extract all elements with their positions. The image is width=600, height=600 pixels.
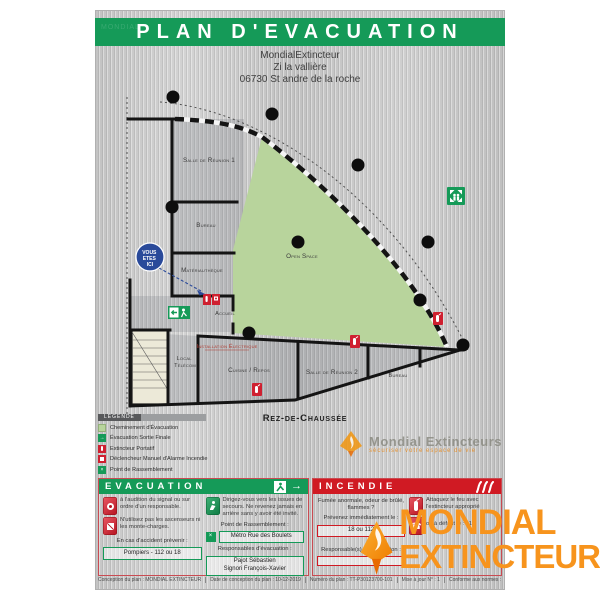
legend-item-label: Déclencheur Manuel d'Alarme Incendie <box>110 456 207 462</box>
assembly-point-icon: × <box>206 532 216 542</box>
legend-header-bar <box>141 414 206 421</box>
responsables-box: Pajot Sébastien Signori François-Xavier <box>206 556 305 576</box>
instruction-no-elevator: N'utilisez pas les ascenseurs ni les mon… <box>103 517 202 535</box>
watermark-text: Mondial Extincteurs sécuriser votre espa… <box>369 435 502 454</box>
watermark-name: Mondial Extincteurs <box>369 435 502 448</box>
assembly-point-icon <box>447 187 465 205</box>
brand-line-2: EXTINCTEUR <box>399 540 600 573</box>
evacuation-left-column: à l'audition du signal ou sur ordre d'un… <box>103 497 202 576</box>
brand-line-1: MONDIAL <box>399 506 600 540</box>
accident-label: En cas d'accident prévenir : <box>103 538 202 545</box>
assembly-point-row: × Métro Rue des Boulets <box>206 531 305 544</box>
legend-item: Déclencheur Manuel d'Alarme Incendie <box>98 455 206 463</box>
room-label-bureau-1: Bureau <box>196 222 215 229</box>
legend: LÉGENDE Cheminement d'Évacuation → Évacu… <box>98 414 206 474</box>
incendie-title: INCENDIE <box>319 481 468 492</box>
title-banner: MONDIAL PLAN D'EVACUATION <box>95 18 505 46</box>
responsables-label: Responsables d'évacuation : <box>206 546 305 553</box>
room-label-local-telecom-2: Télécom <box>174 363 196 369</box>
evacuation-path-area <box>233 137 447 347</box>
brand-text: MONDIAL EXTINCTEUR <box>399 506 600 573</box>
extinguisher-icon <box>98 445 106 453</box>
legend-item: × Point de Rassemblement <box>98 466 206 474</box>
assembly-point-icon: × <box>98 466 106 474</box>
assembly-point-value: Métro Rue des Boulets <box>219 531 305 544</box>
mondial-extincteur-logo: MONDIAL EXTINCTEUR <box>356 498 600 600</box>
evacuation-panel-body: à l'audition du signal ou sur ordre d'un… <box>99 494 308 579</box>
company-watermark: Mondial Extincteurs sécuriser votre espa… <box>338 430 502 458</box>
footer-conception: Conception du plan : MONDIAL EXTINCTEUR <box>98 577 206 583</box>
flame-logo-icon <box>338 430 364 458</box>
page: { "title": "PLAN D'EVACUATION", "address… <box>0 0 600 600</box>
instruction-signal: à l'audition du signal ou sur ordre d'un… <box>103 497 202 515</box>
room-label-accueil: Accueil <box>215 311 235 317</box>
page-title: PLAN D'EVACUATION <box>136 21 463 44</box>
legend-item-label: Extincteur Portatif <box>110 446 154 452</box>
room-label-installation-electrique: Installation Électrique <box>196 343 257 350</box>
accident-contact-value: Pompiers - 112 ou 18 <box>103 547 202 560</box>
evacuation-path-swatch <box>98 424 106 432</box>
instruction-no-elevator-text: N'utilisez pas les ascenseurs ni les mon… <box>120 517 202 531</box>
room-label-bureau-2: Bureau <box>389 373 408 379</box>
room-label-materiautheque: Matériauthèque <box>181 267 223 274</box>
legend-item: Extincteur Portatif <box>98 445 206 453</box>
no-elevator-icon <box>103 517 117 535</box>
room-label-salle-reunion-1: Salle de Réunion 1 <box>183 157 235 164</box>
responsable-1: Pajot Sébastien <box>209 558 302 566</box>
legend-header: LÉGENDE <box>98 414 206 421</box>
extinguisher-icon-facade <box>433 312 443 325</box>
exit-arrow-icon: → <box>291 481 302 492</box>
site-address: MondialExtincteur Zi la vallière 06730 S… <box>95 50 505 86</box>
brand-flame-icon <box>356 498 397 598</box>
legend-item: Cheminement d'Évacuation <box>98 424 206 432</box>
flames-icon <box>473 481 495 493</box>
responsable-2: Signori François-Xavier <box>209 566 302 574</box>
final-exit-icon: → <box>98 434 106 442</box>
evacuation-right-column: Dirigez-vous vers les issues de secours.… <box>206 497 305 576</box>
assembly-point-label: Point de Rassemblement : <box>206 522 305 529</box>
evacuation-panel-header: EVACUATION → <box>99 479 308 494</box>
address-line-2: Zi la vallière <box>95 62 505 74</box>
legend-item: → Évacuation Sortie Finale <box>98 434 206 442</box>
instruction-signal-text: à l'audition du signal ou sur ordre d'un… <box>120 497 202 511</box>
room-label-salle-reunion-2: Salle de Réunion 2 <box>306 369 358 376</box>
extinguisher-icon-openspace <box>350 335 360 348</box>
room-label-open-space: Open Space <box>286 253 318 260</box>
legend-item-label: Cheminement d'Évacuation <box>110 425 178 431</box>
room-label-local-telecom-1: Local <box>177 356 193 362</box>
final-exit-icon <box>168 306 190 319</box>
alarm-signal-icon <box>103 497 117 515</box>
legend-title: LÉGENDE <box>98 414 141 421</box>
address-line-3: 06730 St andre de la roche <box>95 74 505 86</box>
legend-item-label: Évacuation Sortie Finale <box>110 435 171 441</box>
exit-direction-icon <box>206 497 220 515</box>
evacuation-title: EVACUATION <box>105 481 269 492</box>
stairwell <box>132 330 168 404</box>
address-line-1: MondialExtincteur <box>95 50 505 62</box>
footer-date: Date de conception du plan : 10-12-2019 <box>210 577 306 583</box>
svg-text:Local Télécom: Local Télécom <box>174 356 196 369</box>
manual-alarm-icon <box>98 455 106 463</box>
legend-item-label: Point de Rassemblement <box>110 467 173 473</box>
you-are-here-line3: ICI <box>147 262 154 268</box>
floor-label: Rez-de-Chaussée <box>263 413 348 424</box>
extinguisher-icon-cuisine <box>252 383 262 396</box>
instruction-exits: Dirigez-vous vers les issues de secours.… <box>206 497 305 519</box>
evacuation-panel: EVACUATION → à l'audition du signal ou s… <box>98 478 309 576</box>
banner-ghost-logo: MONDIAL <box>101 24 140 31</box>
floor-plan: VOUS ETES ICI Salle de Réunion 1 Bureau … <box>95 88 505 428</box>
room-label-cuisine-repos: Cuisine / Repos <box>228 367 270 374</box>
incendie-panel-header: INCENDIE <box>313 479 501 494</box>
instruction-exits-text: Dirigez-vous vers les issues de secours.… <box>223 497 305 519</box>
running-man-exit-icon <box>274 481 286 493</box>
